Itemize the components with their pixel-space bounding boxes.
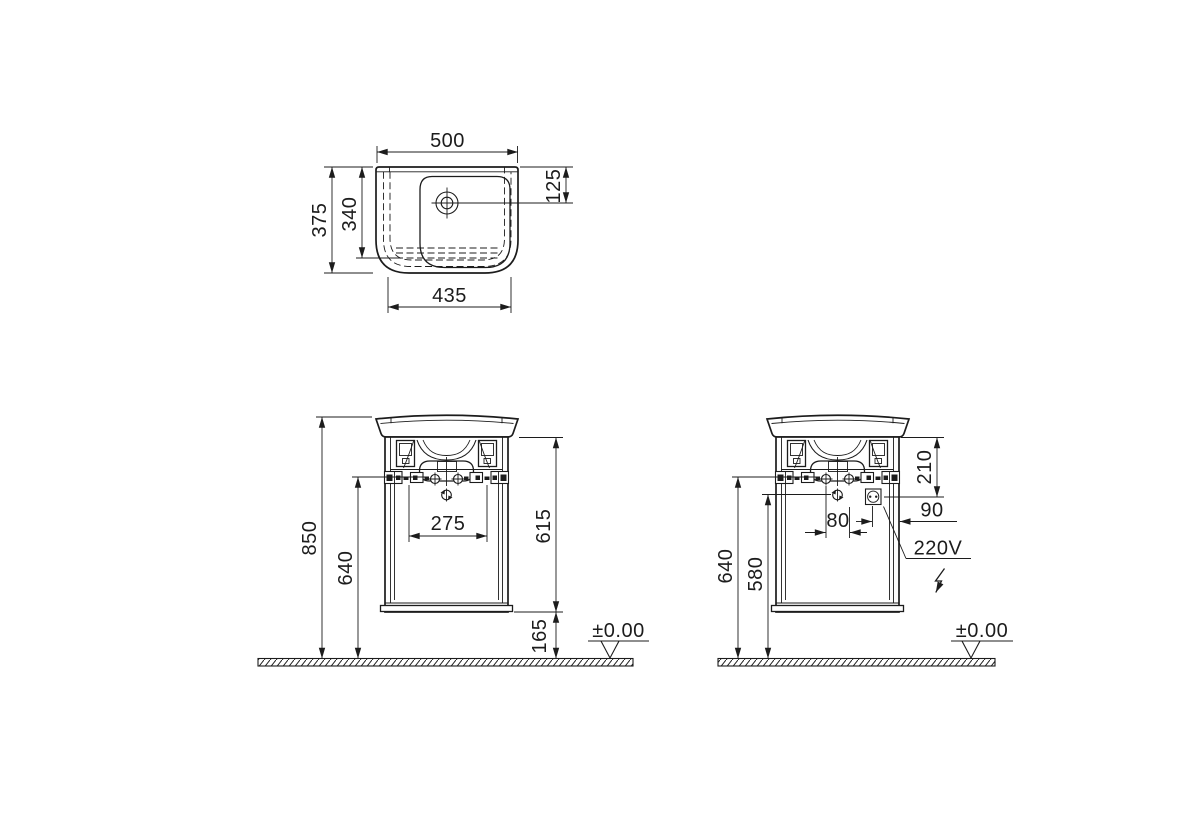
dim-text-socket-offset: 90 xyxy=(920,500,943,522)
dim-text-cabinet-height: 615 xyxy=(533,509,555,544)
dim-text-base-width: 435 xyxy=(432,285,467,307)
dim-text-trap-height: 580 xyxy=(745,557,767,592)
socket-pin-right xyxy=(875,496,877,498)
washbasin-profile xyxy=(376,415,518,437)
sheet-background xyxy=(0,0,1191,839)
dim-text-bracket-height-electric: 640 xyxy=(715,549,737,584)
floor-slab-electric xyxy=(718,659,995,667)
dim-text-socket-fixing-spacing: 80 xyxy=(826,510,849,532)
installation-drawing: 500 375 340 125 435 xyxy=(0,0,1191,839)
dim-text-fixing-spacing: 275 xyxy=(431,513,466,535)
socket-pin-left xyxy=(869,496,871,498)
dim-text-socket-drop: 210 xyxy=(914,450,936,485)
dim-text-overall-width: 500 xyxy=(430,130,465,152)
dim-text-tap-hole-offset: 125 xyxy=(543,169,565,204)
dim-text-floor-clearance: 165 xyxy=(529,619,551,654)
dim-text-bowl-depth: 340 xyxy=(339,197,361,232)
floor-level-text-electric: ±0.00 xyxy=(956,620,1008,642)
cabinet-plinth xyxy=(381,606,513,612)
technical-drawing-sheet: 500 375 340 125 435 xyxy=(0,0,1191,839)
dim-text-overall-height: 850 xyxy=(299,521,321,556)
voltage-label: 220V xyxy=(914,538,963,560)
dim-text-bracket-height: 640 xyxy=(335,551,357,586)
dim-text-overall-depth: 375 xyxy=(309,203,331,238)
floor-level-text: ±0.00 xyxy=(592,620,644,642)
floor-slab-front xyxy=(258,659,633,667)
power-socket xyxy=(866,489,882,505)
